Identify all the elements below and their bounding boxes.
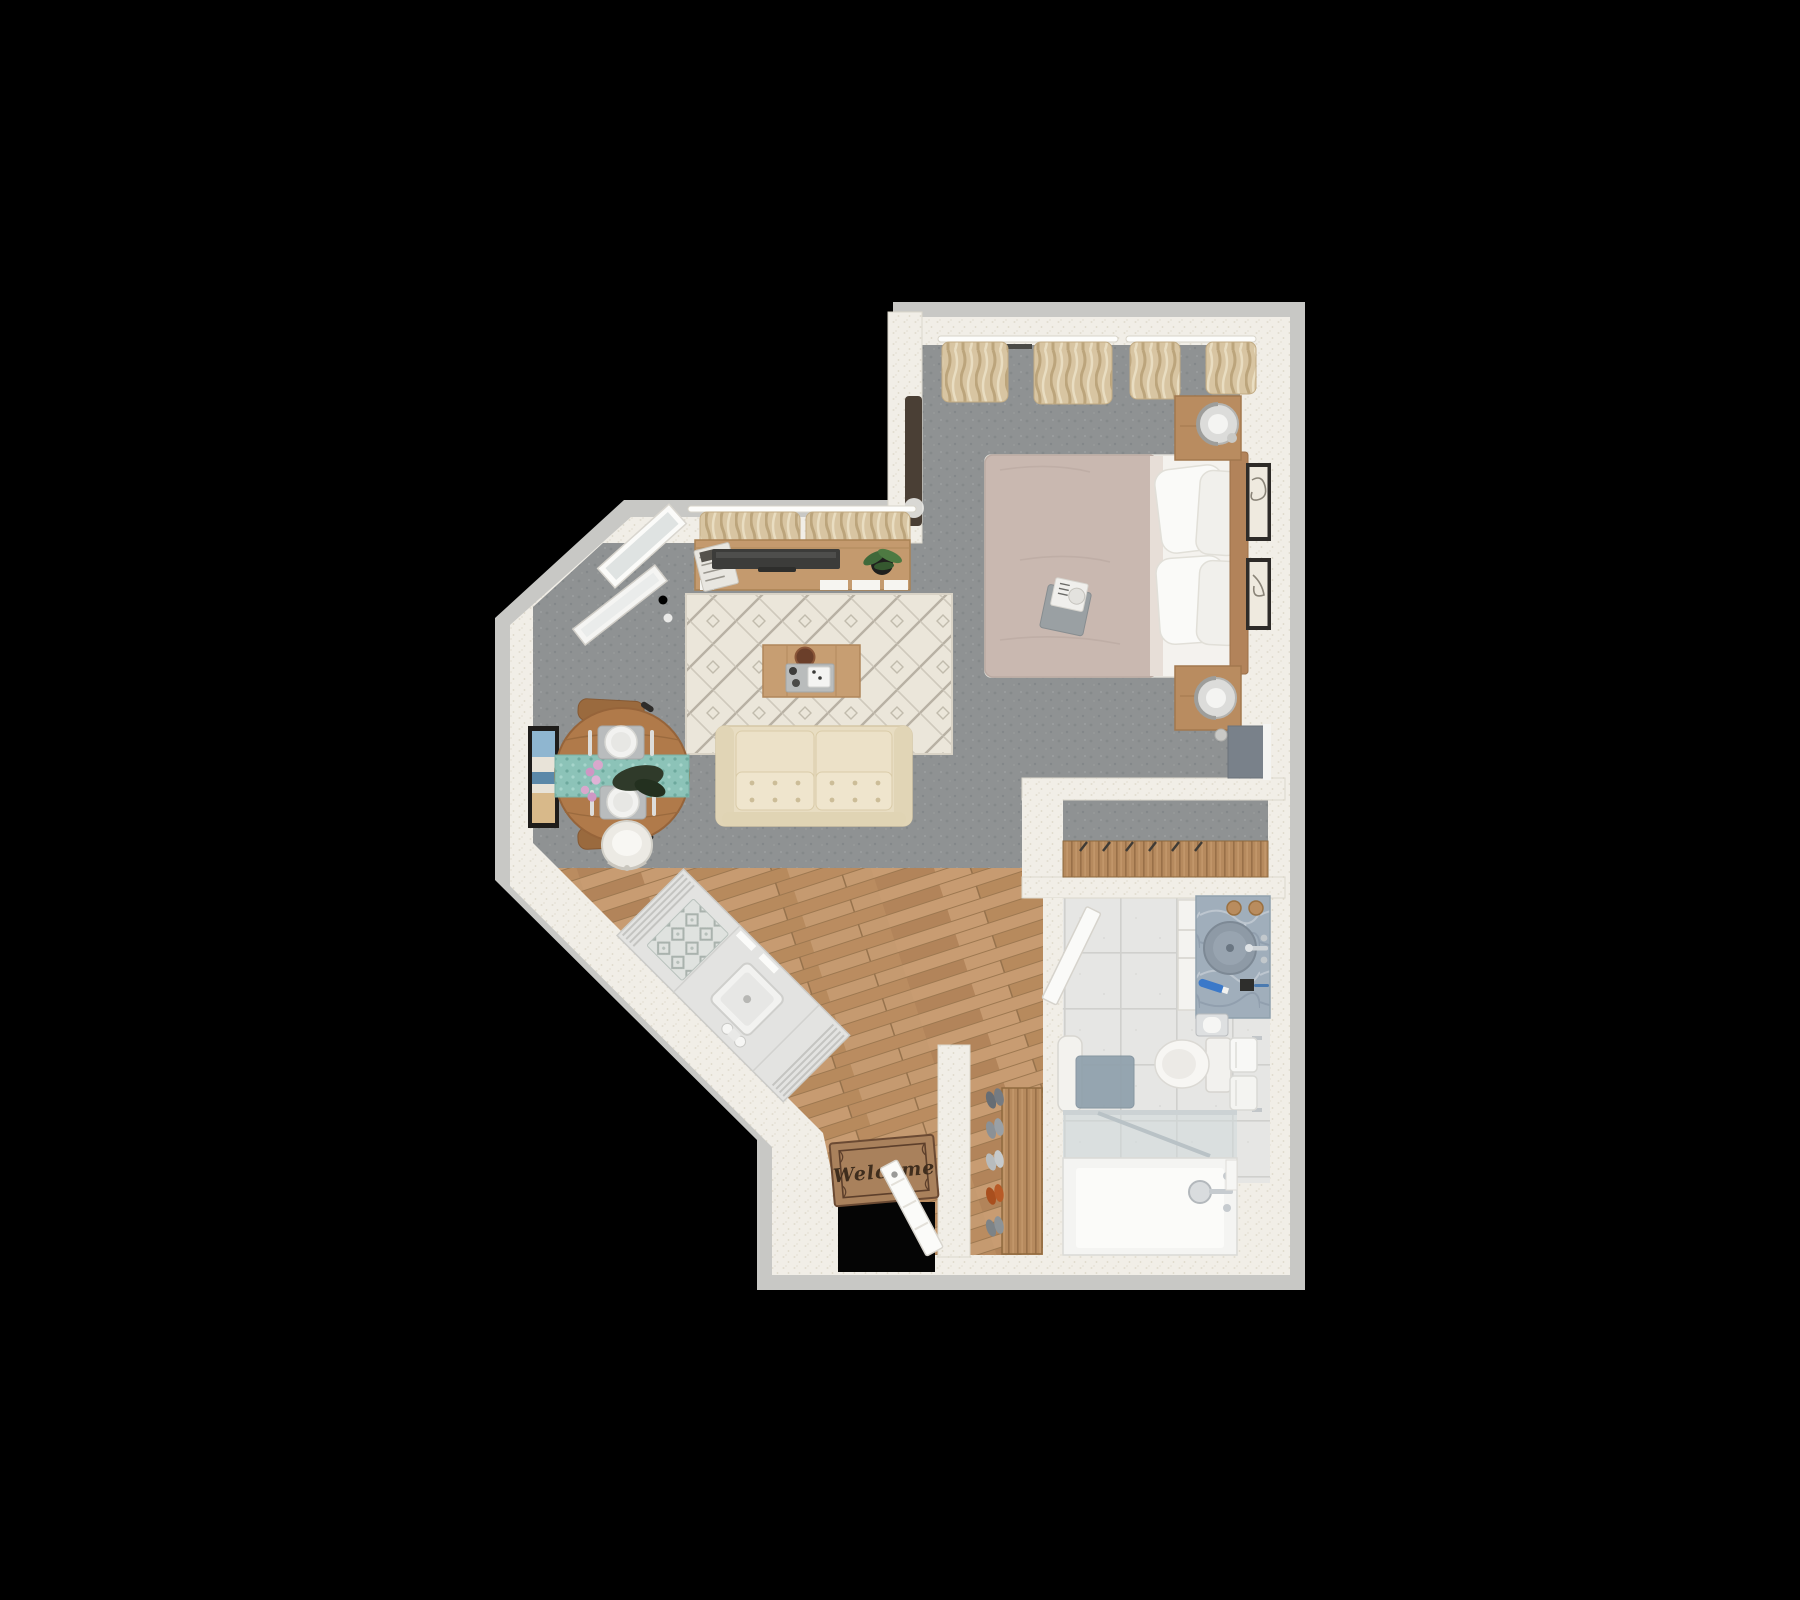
tray-black: [1240, 979, 1254, 991]
toilet: [1155, 1038, 1231, 1092]
console-drawer-3: [884, 580, 908, 590]
window-handle: [659, 596, 668, 605]
toothbrush: [1254, 984, 1269, 987]
sofa-back: [722, 812, 906, 826]
sofa-arm-right: [894, 726, 912, 826]
shower-shelf: [1226, 1160, 1237, 1190]
headboard: [1230, 452, 1248, 674]
wall-frame-bottom: [1246, 558, 1271, 630]
wall-frame-top: [1246, 463, 1271, 541]
tv: [712, 549, 840, 572]
vanity-jar-2: [1249, 901, 1263, 915]
bath-mat: [1076, 1056, 1134, 1108]
coffee-table-tray: [786, 664, 834, 692]
living-curtain-rod: [688, 506, 916, 512]
place-setting-north: [588, 726, 654, 759]
closet-rod-shelf: [1063, 841, 1268, 877]
bed-blanket: [985, 455, 1157, 677]
sofa-arm-left: [716, 726, 734, 826]
white-chair: [602, 821, 652, 871]
sofa-cushion-right: [816, 772, 892, 810]
curtain-rod-right: [1126, 336, 1256, 342]
leaning-panel: [1228, 724, 1271, 780]
floor-plan-stage: Welcome: [0, 0, 1800, 1600]
curtain-rod-left: [938, 336, 1118, 342]
floor-plan-svg: Welcome: [0, 0, 1800, 1600]
lamp-top: [1198, 404, 1238, 444]
console-drawer-1: [820, 580, 848, 590]
vanity: [1178, 896, 1270, 1018]
shower-glass: [1063, 1112, 1237, 1160]
closet: [1063, 841, 1268, 877]
console-drawer-2: [852, 580, 880, 590]
shoe-rack: [1002, 1088, 1042, 1254]
toilet-paper-holder: [1196, 1014, 1228, 1036]
window-handle-2: [664, 614, 673, 623]
vanity-cabinet: [1178, 900, 1198, 1010]
vanity-jar-1: [1227, 901, 1241, 915]
sofa: [716, 726, 912, 826]
closet-top-wall: [1022, 778, 1285, 800]
shower: [1063, 1110, 1237, 1255]
entry-stub-wall: [938, 1045, 970, 1257]
bed: [985, 452, 1248, 677]
closet-bottom-wall: [1022, 877, 1285, 898]
coffee-table: [763, 645, 860, 697]
sofa-cushion-left: [736, 772, 814, 810]
bathroom-corner-jut: [1237, 1183, 1290, 1257]
